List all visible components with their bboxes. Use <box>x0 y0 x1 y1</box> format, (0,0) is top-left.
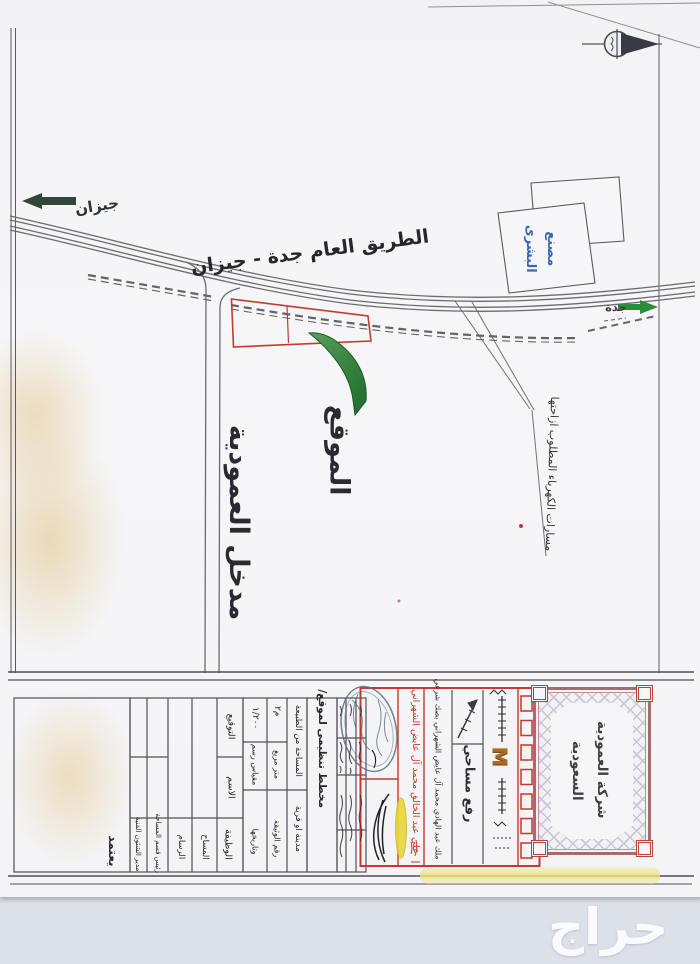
doc-date-label: وتاريخها <box>250 820 259 864</box>
position-draftsman: الرسام <box>175 827 185 867</box>
row-label-position: الوظيفة <box>222 821 233 867</box>
city-label: مدينة او قرية <box>292 798 302 860</box>
approve-label: يعتمد <box>105 830 119 872</box>
company-name-line1: شركة العمودية <box>593 705 609 835</box>
entrance-label: مدخل العمودية <box>223 420 254 625</box>
location-label: الموقع <box>323 406 354 496</box>
survey-label: رفع مساحي <box>461 752 476 822</box>
handwriting-scribbles <box>340 704 362 857</box>
area-unit-label: متر مربع <box>272 744 281 786</box>
scale-label: مقياس رسم <box>250 743 259 787</box>
plan-title: مخطط تنظيمى لموقع/ <box>316 704 328 808</box>
stamp-ellipse <box>334 681 405 776</box>
position-surveyor: المساح <box>199 827 209 867</box>
factory-label-line2: البشرى <box>519 209 540 289</box>
owner-name-red: علي عبد الخالق محمد آل عايض الشهراني <box>409 689 420 854</box>
east-direction-label: جدة <box>596 301 636 314</box>
row-label-name: الاسم <box>225 767 236 807</box>
north-compass-icon <box>582 29 662 59</box>
monogram-m: M <box>488 746 511 768</box>
row-label-signature: التوقيع <box>225 703 236 749</box>
corner-knot-icon <box>531 685 548 702</box>
company-name-line2: السعودية <box>568 725 584 817</box>
position-head-survey: رئيس قسم المساحة <box>154 815 162 873</box>
area-value-unit: م٢ <box>272 699 282 723</box>
corner-knot-icon <box>531 840 548 857</box>
company-panel <box>551 703 633 839</box>
factory-buildings <box>498 177 624 293</box>
map-frame <box>11 2 700 673</box>
red-dot <box>398 600 401 603</box>
corner-knot-icon <box>636 840 653 857</box>
red-dot <box>519 524 523 528</box>
factory-label-line1: مصنع <box>540 209 561 289</box>
scanned-site-plan-page: { "page": { "background_color": "#dce0e8… <box>0 0 700 964</box>
location-pointer-arrow <box>309 333 366 415</box>
deed-note: ملك عبد الهادي محمد آل عايض الشهراني بصك… <box>433 690 442 860</box>
doc-number-label: رقم الوثيقة <box>272 814 281 864</box>
surveyor-logo-decor <box>490 690 511 848</box>
highlighter-mark <box>396 798 407 858</box>
position-director: مدير الشئون الفنية <box>134 815 142 873</box>
red-approval-frame <box>360 688 540 866</box>
company-logo-box <box>533 687 651 855</box>
scale-value: ١/٢٠٠ <box>250 698 260 738</box>
haraj-watermark: حراج <box>548 898 668 956</box>
area-label: المساحة من الطبيعة <box>292 699 302 783</box>
factory-label: مصنع البشرى <box>519 209 561 289</box>
ornament-strip <box>521 696 532 858</box>
corner-knot-icon <box>636 685 653 702</box>
yellow-highlight-band <box>420 867 660 884</box>
north-indicator-icon <box>458 700 477 738</box>
